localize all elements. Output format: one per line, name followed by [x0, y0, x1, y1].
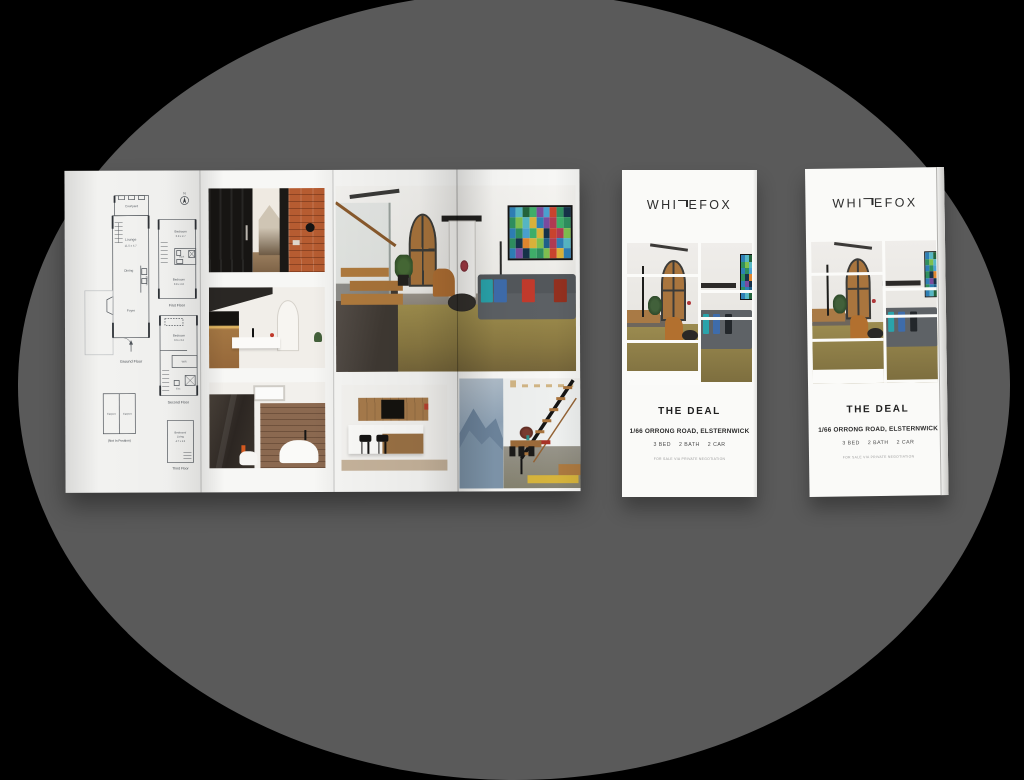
- logo-stylized-t: T: [678, 198, 688, 212]
- bathroom-photo: [209, 382, 325, 468]
- stone-benchtop: [232, 337, 280, 348]
- blue-cushion: [494, 279, 507, 302]
- skylight: [253, 385, 285, 402]
- fold-crease: [199, 170, 201, 492]
- svg-text:Kitchen: Kitchen: [145, 276, 149, 286]
- logo-part: EFOX: [688, 198, 732, 212]
- svg-text:Bedroom: Bedroom: [173, 333, 186, 337]
- collage-grid-gap: [698, 382, 752, 385]
- stair-tread: [341, 268, 389, 277]
- coffee-table: [447, 293, 476, 311]
- collage-grid-line: [698, 290, 752, 293]
- brochure-cover-front: WHITEFOX: [622, 170, 757, 497]
- bar-stool: [376, 435, 388, 442]
- colorful-artwork: [740, 254, 753, 300]
- whitefox-logo: WHITEFOX: [805, 195, 944, 211]
- basin: [279, 440, 319, 462]
- compass-label: N: [183, 191, 186, 195]
- cover-photo-collage: [627, 243, 752, 385]
- dining-chair: [509, 447, 515, 457]
- second-floor-plan: [160, 315, 197, 395]
- black-tap: [252, 329, 254, 338]
- ground-floor-plan: [85, 196, 150, 355]
- grey-sofa: [884, 307, 937, 347]
- grey-sofa: [700, 310, 753, 350]
- spec-bath: 2 BATH: [679, 442, 700, 448]
- svg-text:Foyer: Foyer: [127, 309, 136, 313]
- grey-sofa: [477, 274, 576, 319]
- timber-floor: [209, 353, 325, 369]
- svg-text:3.9 x 2.7: 3.9 x 2.7: [176, 234, 187, 238]
- floorplan-panel: N Courtyard Lounge 11.5 x 4.7 Dining Kit…: [64, 170, 200, 492]
- door-edge: [279, 188, 289, 272]
- stair-tread: [341, 294, 403, 305]
- pot-plant: [314, 332, 322, 342]
- arched-window: [661, 260, 686, 321]
- black-entry-door: [209, 188, 253, 272]
- collage-grid-gap: [627, 371, 698, 385]
- red-cushion: [522, 279, 535, 302]
- door-head-beam: [883, 280, 921, 286]
- colorful-artwork: [507, 206, 572, 260]
- mockup-scene: N Courtyard Lounge 11.5 x 4.7 Dining Kit…: [0, 0, 1024, 772]
- cover-footnote: FOR SALE VIA PRIVATE NEGOTIATION: [809, 454, 948, 460]
- logo-part: EFOX: [874, 195, 918, 210]
- logo-part: WHI: [832, 196, 864, 210]
- cover-title: THE DEAL: [622, 406, 757, 417]
- collage-grid-line: [698, 317, 752, 320]
- yellow-rug: [527, 475, 578, 483]
- cover-specs: 3 BED 2 BATH 2 CAR: [809, 439, 948, 447]
- logo-part: WHI: [647, 198, 679, 212]
- dark-red-cushion: [554, 279, 567, 302]
- collage-grid-line: [698, 243, 701, 385]
- svg-text:WIR: WIR: [182, 359, 187, 363]
- black-appliance: [382, 399, 404, 418]
- svg-text:(Not In Position): (Not In Position): [108, 439, 131, 443]
- dining-chair: [519, 446, 525, 456]
- svg-text:Second Floor: Second Floor: [168, 400, 190, 404]
- cover-address: 1/66 ORRONG ROAD, ELSTERNWICK: [809, 425, 948, 434]
- basin-tap: [305, 431, 307, 441]
- svg-text:11.5 x 4.7: 11.5 x 4.7: [125, 244, 138, 248]
- brick-patch: [292, 240, 299, 245]
- cover-title: THE DEAL: [808, 403, 947, 416]
- svg-text:Third Floor: Third Floor: [172, 466, 189, 470]
- svg-text:Ens: Ens: [176, 387, 181, 390]
- svg-text:3.6 x 3.2: 3.6 x 3.2: [174, 338, 185, 342]
- vase-flowers: [459, 260, 469, 273]
- svg-text:Living: Living: [177, 434, 185, 438]
- colorful-artwork: [924, 252, 938, 298]
- svg-text:Carport: Carport: [123, 412, 132, 416]
- cover-specs: 3 BED 2 BATH 2 CAR: [622, 442, 757, 448]
- cover-photo-collage: [811, 240, 938, 384]
- svg-text:Bath: Bath: [179, 255, 185, 258]
- leather-armchair: [665, 317, 684, 343]
- compass-icon: [181, 196, 189, 204]
- toilet: [240, 451, 257, 466]
- collage-grid-line: [627, 340, 698, 343]
- leather-armchair: [433, 268, 455, 296]
- brochure-cover-front-copy: WHITEFOX: [805, 167, 949, 497]
- spec-bath: 2 BATH: [868, 440, 889, 446]
- arched-window: [845, 258, 871, 319]
- kitchen-island-photo: [341, 385, 447, 471]
- svg-text:Bedroom: Bedroom: [173, 277, 186, 281]
- open-brochure-spread: N Courtyard Lounge 11.5 x 4.7 Dining Kit…: [64, 169, 580, 493]
- spec-car: 2 CAR: [897, 440, 915, 446]
- cover-address: 1/66 ORRONG ROAD, ELSTERNWICK: [622, 428, 757, 435]
- cover-footnote: FOR SALE VIA PRIVATE NEGOTIATION: [622, 457, 757, 461]
- kitchen-floor: [341, 459, 447, 471]
- teal-cushion: [480, 279, 493, 302]
- svg-text:Ground Floor: Ground Floor: [120, 360, 143, 364]
- door-head-beam: [698, 283, 736, 289]
- svg-text:Courtyard: Courtyard: [125, 204, 139, 208]
- spec-bed: 3 BED: [653, 442, 671, 448]
- indoor-plant: [833, 294, 847, 314]
- kitchen-corridor-photo: [209, 287, 325, 368]
- collage-grid-gap: [884, 379, 938, 383]
- spec-car: 2 CAR: [708, 442, 726, 448]
- teal-vase: [526, 435, 529, 440]
- svg-text:Carport: Carport: [107, 412, 116, 416]
- logo-stylized-t: T: [864, 196, 874, 210]
- dining-stair-photo: [459, 378, 580, 488]
- fold-crease: [332, 170, 334, 492]
- stair-tread: [350, 281, 403, 291]
- arched-white-door: [277, 300, 299, 351]
- svg-text:Dining: Dining: [124, 269, 133, 273]
- indoor-plant: [648, 296, 662, 316]
- entry-hallway-photo: [209, 188, 325, 272]
- floor-lamp: [500, 241, 502, 276]
- collage-grid-line: [627, 274, 698, 277]
- spec-bed: 3 BED: [842, 440, 860, 446]
- dining-chair: [528, 446, 534, 456]
- plant-pot: [398, 275, 409, 286]
- svg-text:First Floor: First Floor: [169, 303, 186, 307]
- bar-stool: [359, 435, 371, 442]
- svg-text:4.7 x 3.5: 4.7 x 3.5: [176, 440, 186, 443]
- svg-text:Bedroom/: Bedroom/: [175, 430, 187, 434]
- red-decor: [424, 404, 428, 410]
- svg-text:Lounge: Lounge: [125, 238, 136, 242]
- collage-grid-gap: [813, 369, 884, 384]
- svg-text:3.8 x 2.8: 3.8 x 2.8: [174, 282, 185, 286]
- whitefox-logo: WHITEFOX: [622, 198, 757, 212]
- page-edge: [753, 170, 757, 497]
- svg-text:Bedroom: Bedroom: [175, 229, 188, 233]
